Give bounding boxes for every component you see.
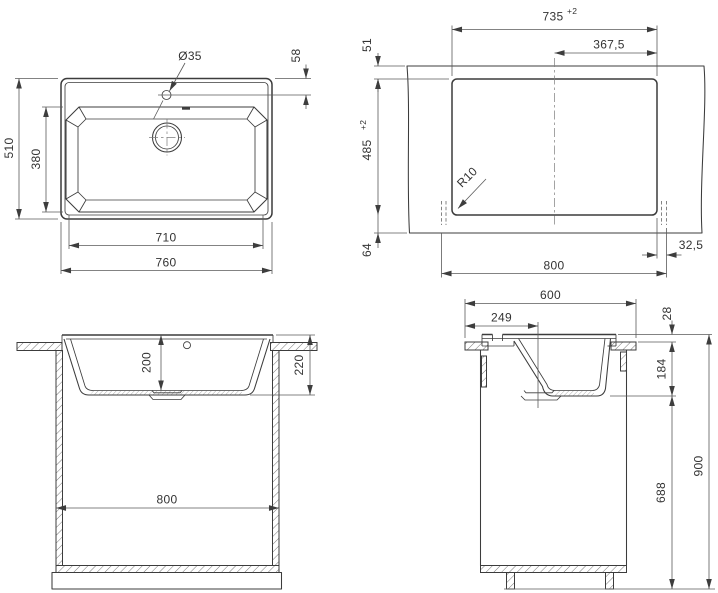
dim-front-clearance-64: 64 [360, 215, 407, 257]
technical-drawing-page: Ø35 510 380 710 760 [0, 0, 718, 593]
dim-center-to-edge-label: 367,5 [593, 38, 625, 52]
view-top-plan: Ø35 510 380 710 760 [2, 49, 311, 274]
dim-back-clearance-51: 51 [360, 38, 449, 92]
dim-depth-below-worktop-label: 184 [655, 359, 669, 380]
cabinet-section-side [481, 350, 716, 589]
dim-drain-offset-label: 249 [491, 311, 512, 325]
dim-corner-radius-label: R10 [454, 164, 480, 190]
back-rail [621, 352, 627, 371]
dim-cutout-width-tolerance: +2 [567, 6, 577, 16]
dim-cabinet-width-800-front: 800 [56, 493, 279, 509]
dim-back-clearance-label: 51 [360, 38, 374, 52]
dim-bowl-depth-label: 380 [29, 149, 43, 170]
dim-bowl-width-label: 710 [156, 231, 177, 245]
plinth [52, 573, 282, 590]
dim-bowl-inner-depth-200: 200 [140, 335, 162, 391]
dim-front-clearance-label: 64 [360, 243, 374, 257]
dim-cutout-depth-485: 485 +2 [358, 79, 378, 215]
dim-corner-radius-r10: R10 [454, 164, 486, 208]
dim-bowl-width-710: 710 [69, 215, 263, 249]
dim-total-height-label: 900 [692, 456, 706, 477]
view-side-section: 600 249 28 184 688 900 [465, 288, 715, 589]
worktop-section [17, 343, 317, 351]
view-worktop-cutout: 735 +2 367,5 51 485 +2 64 R10 [358, 6, 705, 278]
sink-section [62, 335, 273, 400]
sink-section-side [482, 322, 616, 408]
dim-center-to-edge-367-5: 367,5 [555, 38, 658, 54]
drain-hole [149, 120, 185, 156]
dim-side-clearance-label: 32,5 [679, 238, 704, 252]
drain-fitting [149, 395, 185, 400]
dim-cabinet-body-height-label: 688 [654, 482, 668, 503]
dim-side-clearance-32-5: 32,5 [642, 218, 703, 259]
drain-recess-side [524, 391, 554, 393]
dim-faucet-hole-dia-label: Ø35 [178, 49, 202, 63]
dim-bowl-depth-380: 380 [29, 107, 63, 212]
drain-fitting-side [521, 396, 561, 400]
dim-cabinet-width-front-label: 800 [157, 493, 178, 507]
dim-bowl-inner-depth-label: 200 [140, 352, 154, 373]
dim-sink-total-height-label: 220 [292, 355, 306, 376]
dim-cutout-width-label: 735 [543, 10, 564, 24]
dim-rim-above-worktop-28: 28 [618, 307, 712, 342]
dim-cutout-depth-tolerance: +2 [358, 120, 368, 130]
dim-cabinet-width-cutout-label: 800 [544, 259, 565, 273]
dim-rim-above-worktop-label: 28 [660, 307, 674, 321]
faucet-hole-front [184, 342, 191, 349]
dim-faucet-offset-label: 58 [289, 49, 303, 63]
dim-drain-offset-249: 249 [465, 311, 538, 327]
dim-cutout-depth-label: 485 [360, 140, 374, 161]
dim-cabinet-body-height-688: 688 [654, 396, 672, 589]
worktop-outline [407, 58, 705, 233]
cabinet-leg [606, 573, 614, 590]
front-rail [482, 356, 487, 387]
dim-faucet-hole-diameter: Ø35 [154, 49, 202, 119]
dim-cabinet-width-800-cutout: 800 [442, 228, 667, 278]
dim-worktop-depth-label: 600 [540, 288, 561, 302]
sink-dimension-drawing: Ø35 510 380 710 760 [0, 0, 718, 593]
dim-outer-depth-label: 510 [2, 138, 16, 159]
dim-outer-width-label: 760 [156, 256, 177, 270]
cabinet-section [52, 351, 282, 590]
dim-total-height-900: 900 [692, 335, 710, 590]
view-front-section: 200 220 800 [17, 335, 317, 589]
cabinet-leg [507, 573, 515, 590]
